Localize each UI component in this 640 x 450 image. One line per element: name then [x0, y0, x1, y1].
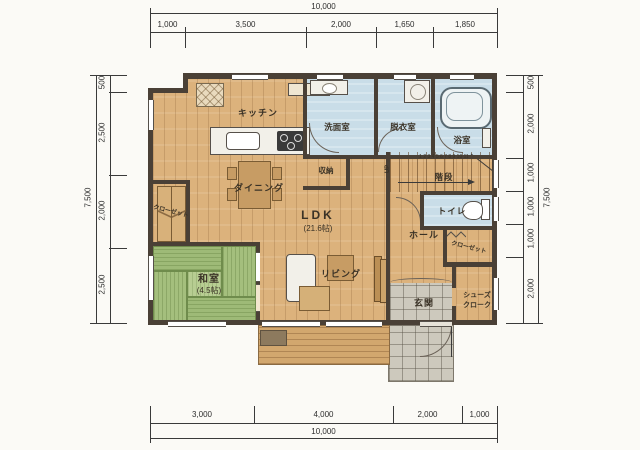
dim-tick	[150, 8, 151, 48]
tatami-mat	[187, 297, 256, 322]
dim-tick	[506, 92, 524, 93]
dim-line	[523, 75, 524, 323]
dim-tick	[506, 257, 524, 258]
dim-top-seg: 2,000	[306, 20, 376, 29]
dim-tick	[506, 224, 524, 225]
stove-burner-icon	[294, 134, 302, 142]
dim-tick	[376, 27, 377, 48]
dim-bottom-seg: 2,000	[393, 410, 462, 419]
dim-tick	[506, 323, 543, 324]
dim-right-seg: 1,000	[527, 217, 536, 261]
dim-tick	[185, 27, 186, 48]
pantry-hatch	[196, 83, 224, 107]
washroom-label: 洗面室	[307, 121, 367, 133]
dim-bottom-seg: 3,000	[150, 410, 254, 419]
dim-line	[150, 13, 497, 14]
dim-left-seg: 2,500	[98, 111, 107, 155]
wall	[386, 195, 390, 325]
window	[450, 74, 474, 80]
dim-line	[150, 423, 497, 424]
dim-tick	[109, 248, 127, 249]
wall	[148, 180, 190, 184]
entrance-step-line	[390, 278, 452, 287]
bathroom-label: 浴室	[437, 134, 487, 146]
wall	[374, 73, 378, 158]
ldk-size-label: (21.6帖)	[288, 223, 348, 234]
dim-top-total: 10,000	[150, 2, 497, 11]
shoe-closet-label-line1: シューズ	[452, 290, 502, 300]
dressing-room-label: 脱衣室	[373, 121, 433, 133]
dim-left-seg: 500	[98, 61, 107, 105]
dim-top-seg: 3,500	[185, 20, 306, 29]
dining-chair	[272, 167, 282, 180]
japanese-room-size-label: (4.5帖)	[179, 285, 239, 296]
dim-tick	[254, 406, 255, 424]
wall	[148, 242, 260, 246]
wall	[420, 191, 497, 195]
bathtub-inner	[446, 92, 483, 121]
dim-right-seg: 2,000	[527, 267, 536, 311]
dim-right-seg: 500	[527, 61, 536, 105]
window	[232, 74, 268, 80]
entrance-door-leaf	[451, 325, 452, 357]
window	[394, 74, 416, 80]
dim-right-seg: 2,000	[527, 102, 536, 146]
dim-top-seg: 1,650	[376, 20, 433, 29]
dim-left-total: 7,500	[84, 176, 93, 220]
dim-top-seg: 1,850	[433, 20, 497, 29]
window	[493, 160, 499, 188]
stairs-arrow-head-icon	[468, 179, 475, 185]
dim-left-seg: 2,500	[98, 263, 107, 307]
japanese-room-label: 和室	[179, 270, 239, 285]
dim-bottom-total: 10,000	[150, 427, 497, 436]
living-label: リビング	[301, 267, 381, 280]
washer-drum-icon	[410, 84, 426, 100]
dim-bottom-seg: 1,000	[462, 410, 497, 419]
window	[148, 100, 154, 130]
stairs-up-label: UP	[385, 159, 391, 179]
dining-chair	[227, 167, 237, 180]
floor-plan-page: { "plan": { "rooms": { "kitchen": {"labe…	[0, 0, 640, 450]
window	[493, 197, 499, 221]
storage-label: 収納	[306, 165, 346, 176]
dim-line	[150, 32, 497, 33]
dim-line	[150, 438, 497, 439]
dim-bottom-seg: 4,000	[254, 410, 393, 419]
window	[168, 321, 226, 327]
dim-tick	[506, 191, 524, 192]
dim-tick	[109, 92, 127, 93]
kitchen-label: キッチン	[218, 106, 298, 119]
dim-tick	[462, 406, 463, 424]
tatami-mat	[153, 246, 222, 271]
wall	[303, 73, 307, 158]
dim-tick	[393, 406, 394, 424]
dim-top-seg: 1,000	[150, 20, 185, 29]
dim-right-total: 7,500	[543, 176, 552, 220]
window	[326, 321, 382, 327]
dim-tick	[433, 27, 434, 48]
sliding-door-mark	[256, 252, 260, 282]
deck-step	[260, 330, 287, 346]
window	[262, 321, 320, 327]
wall	[303, 186, 350, 190]
sliding-door-mark	[256, 284, 260, 312]
dim-line	[110, 75, 111, 323]
stove-burner-icon	[280, 134, 288, 142]
stairs-label: 階段	[419, 171, 469, 183]
window	[148, 256, 154, 300]
dim-tick	[109, 175, 127, 176]
ldk-label: LDK	[288, 208, 348, 222]
dim-tick	[90, 323, 127, 324]
kitchen-sink	[226, 132, 260, 150]
wall	[431, 73, 435, 158]
dim-line	[538, 75, 539, 323]
toilet-label: トイレ	[422, 205, 482, 217]
dining-label: ダイニング	[219, 181, 299, 194]
entrance-label: 玄関	[394, 296, 454, 309]
wall	[148, 88, 188, 93]
window	[317, 74, 343, 80]
dim-tick	[506, 75, 543, 76]
dim-tick	[497, 8, 498, 48]
dim-left-seg: 2,000	[98, 189, 107, 233]
dim-tick	[497, 406, 498, 443]
dim-tick	[306, 27, 307, 48]
living-cushion	[299, 286, 330, 311]
shoe-closet-label-line2: クローク	[452, 300, 502, 310]
stairs-step-numbers: 1 2 3 4 5 6 7 8 9 10 11	[394, 154, 494, 160]
stove-burner-icon	[287, 142, 295, 150]
basin-bowl-icon	[322, 83, 337, 94]
dim-tick	[90, 75, 127, 76]
entrance-door-gap	[420, 321, 452, 327]
dim-tick	[506, 158, 524, 159]
